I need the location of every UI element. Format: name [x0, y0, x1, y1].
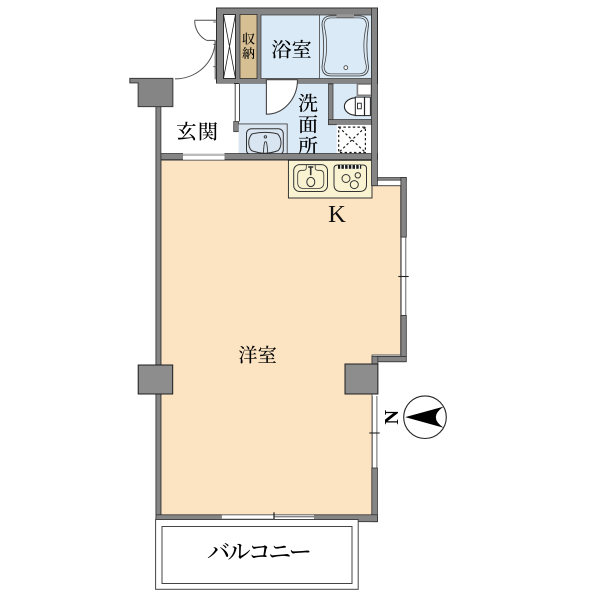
svg-text:N: N	[381, 410, 403, 425]
svg-text:K: K	[328, 201, 346, 228]
